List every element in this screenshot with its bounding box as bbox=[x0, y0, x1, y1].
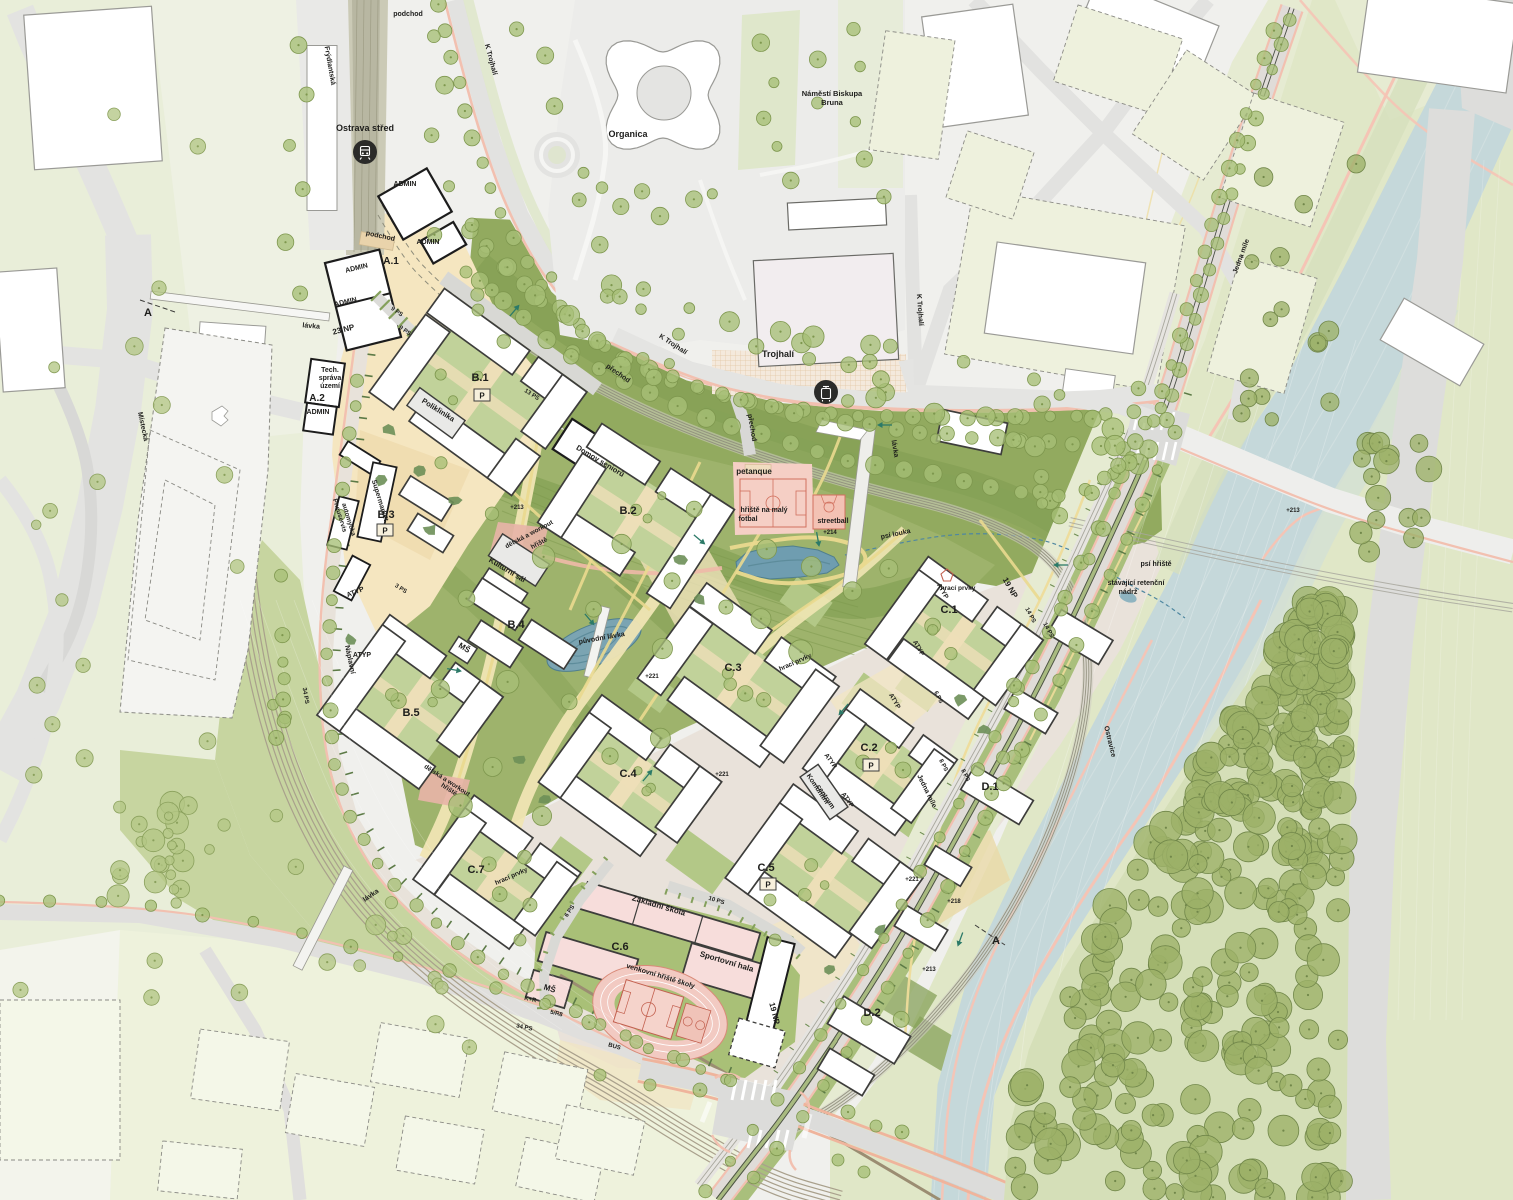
svg-text:ADMIN: ADMIN bbox=[417, 239, 440, 246]
svg-text:A.1: A.1 bbox=[383, 256, 399, 267]
svg-text:A.2: A.2 bbox=[309, 393, 325, 404]
svg-text:C.1: C.1 bbox=[940, 604, 957, 616]
svg-text:C.4: C.4 bbox=[619, 768, 637, 780]
svg-text:+214: +214 bbox=[823, 530, 837, 536]
svg-text:+213: +213 bbox=[510, 505, 524, 511]
svg-text:ATYP: ATYP bbox=[353, 652, 371, 659]
svg-text:stávající retenční: stávající retenční bbox=[1108, 580, 1166, 587]
svg-text:+218: +218 bbox=[947, 899, 961, 905]
svg-text:+221: +221 bbox=[645, 674, 659, 680]
svg-text:správa: správa bbox=[319, 375, 342, 382]
svg-text:území: území bbox=[320, 383, 341, 390]
svg-text:fotbal: fotbal bbox=[738, 516, 757, 523]
svg-text:ADMIN: ADMIN bbox=[307, 409, 330, 416]
svg-text:petanque: petanque bbox=[736, 467, 772, 476]
svg-text:P: P bbox=[765, 881, 771, 890]
svg-text:C.3: C.3 bbox=[724, 662, 741, 674]
svg-text:C.7: C.7 bbox=[467, 864, 484, 876]
svg-text:Trojhalí: Trojhalí bbox=[762, 349, 795, 359]
svg-text:P: P bbox=[479, 392, 485, 401]
svg-text:C.5: C.5 bbox=[757, 862, 774, 874]
svg-text:C.2: C.2 bbox=[860, 742, 877, 754]
svg-text:hřiště na malý: hřiště na malý bbox=[740, 507, 787, 514]
svg-text:B.5: B.5 bbox=[402, 707, 419, 719]
svg-text:A: A bbox=[144, 307, 152, 319]
svg-text:B.4: B.4 bbox=[507, 619, 525, 631]
svg-text:Náměstí Biskupa: Náměstí Biskupa bbox=[802, 89, 863, 98]
svg-text:Tech.: Tech. bbox=[321, 367, 339, 374]
svg-text:Ostrava střed: Ostrava střed bbox=[336, 123, 394, 133]
svg-text:B.2: B.2 bbox=[619, 505, 636, 517]
svg-text:nádrž: nádrž bbox=[1119, 589, 1138, 596]
svg-text:P: P bbox=[382, 527, 388, 536]
svg-text:psí hřiště: psí hřiště bbox=[1140, 561, 1171, 568]
svg-text:+221: +221 bbox=[715, 772, 729, 778]
svg-text:ADMIN: ADMIN bbox=[394, 181, 417, 188]
svg-text:Bruna: Bruna bbox=[821, 98, 843, 107]
svg-text:D.1: D.1 bbox=[981, 781, 998, 793]
svg-text:D.2: D.2 bbox=[863, 1007, 880, 1019]
svg-text:B.1: B.1 bbox=[471, 372, 488, 384]
svg-text:C.6: C.6 bbox=[611, 941, 628, 953]
svg-text:+221: +221 bbox=[905, 877, 919, 883]
svg-text:+213: +213 bbox=[922, 967, 936, 973]
svg-text:P: P bbox=[868, 762, 874, 771]
svg-text:Organica: Organica bbox=[608, 129, 648, 139]
svg-text:+213: +213 bbox=[1286, 508, 1300, 514]
svg-text:podchod: podchod bbox=[393, 11, 423, 18]
svg-text:streetball: streetball bbox=[817, 518, 848, 525]
